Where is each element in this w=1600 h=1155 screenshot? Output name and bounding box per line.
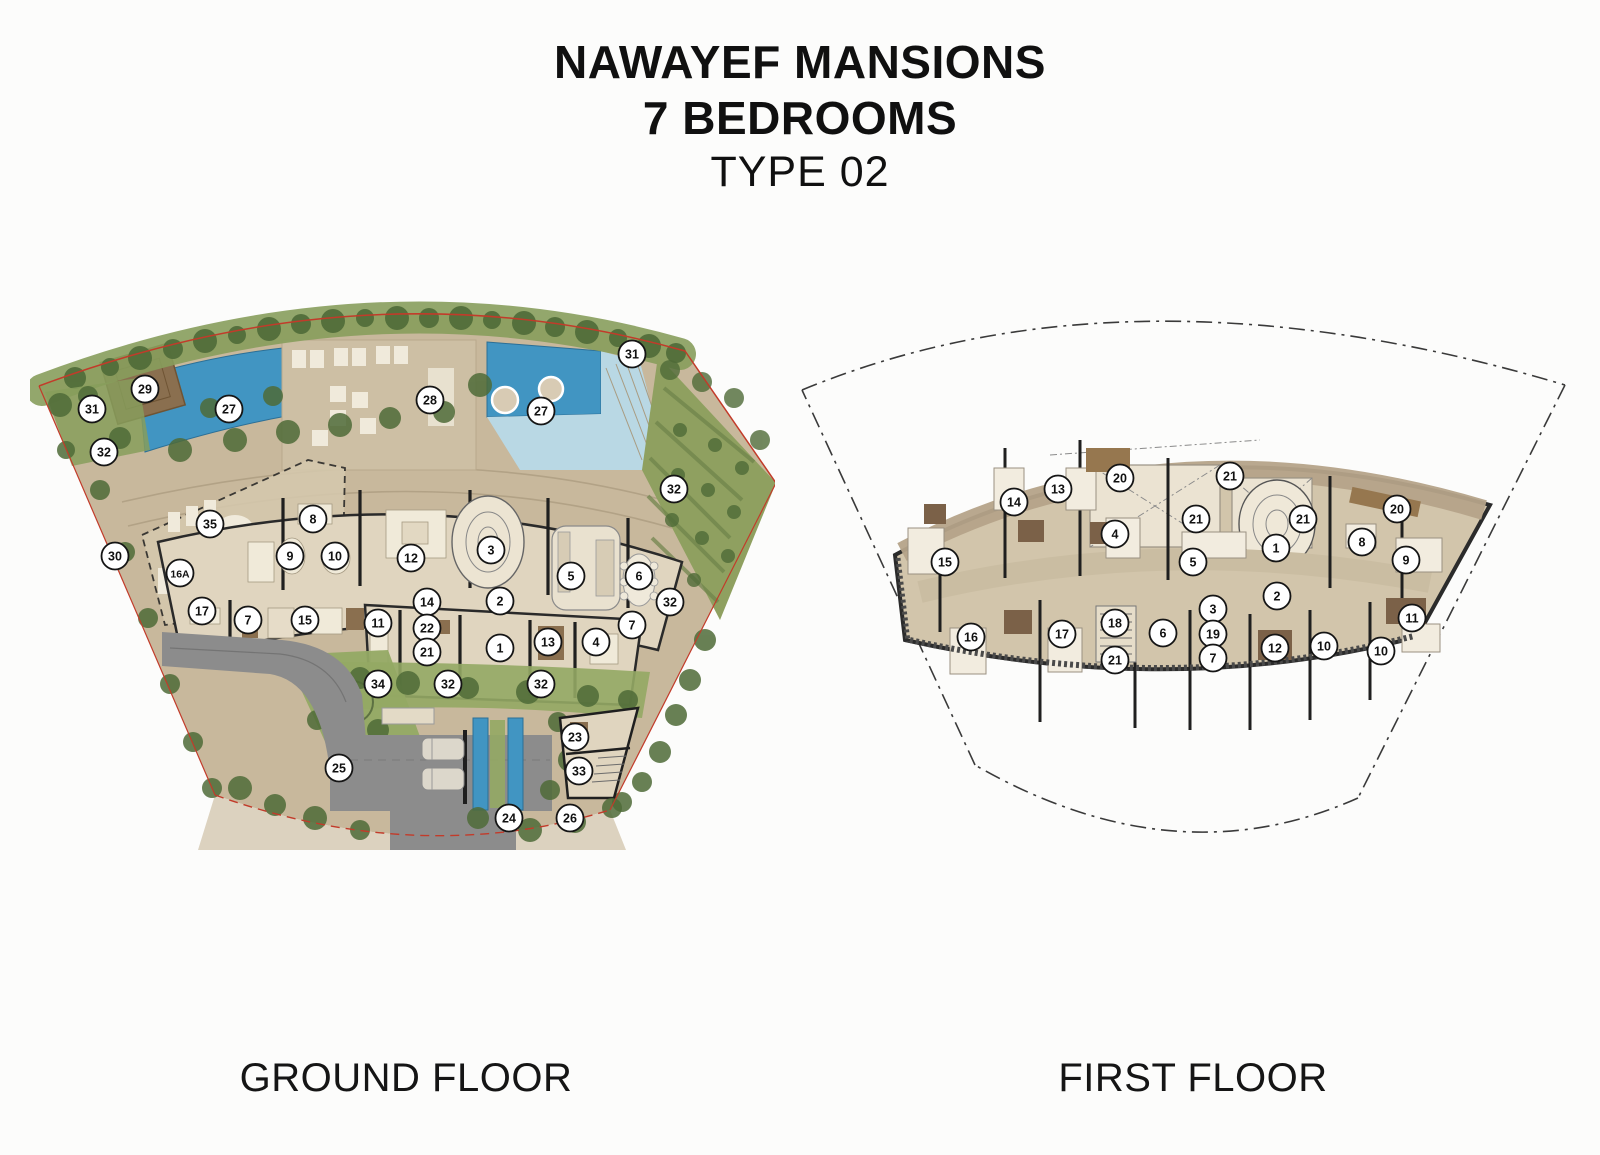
svg-text:12: 12 — [1268, 641, 1282, 655]
svg-text:5: 5 — [568, 569, 575, 583]
svg-text:21: 21 — [1189, 512, 1203, 526]
svg-text:28: 28 — [423, 393, 437, 407]
svg-text:32: 32 — [97, 445, 111, 459]
plan-marker-7: 7 — [619, 612, 646, 639]
svg-text:32: 32 — [534, 677, 548, 691]
plan-marker-32: 32 — [528, 671, 555, 698]
plan-marker-6: 6 — [626, 563, 653, 590]
svg-text:10: 10 — [1374, 644, 1388, 658]
plan-marker-10: 10 — [1311, 633, 1338, 660]
svg-text:18: 18 — [1108, 616, 1122, 630]
plan-marker-7: 7 — [235, 607, 262, 634]
svg-text:27: 27 — [222, 402, 236, 416]
svg-text:2: 2 — [497, 594, 504, 608]
plan-marker-31: 31 — [79, 396, 106, 423]
svg-text:32: 32 — [441, 677, 455, 691]
plan-marker-14: 14 — [414, 589, 441, 616]
ground-floor-plan: 29312732282731323583016A9101235632177151… — [30, 290, 775, 850]
service-rooms — [560, 708, 638, 798]
plan-marker-16A: 16A — [167, 560, 194, 587]
plan-marker-32: 32 — [91, 439, 118, 466]
plan-marker-34: 34 — [365, 671, 392, 698]
plan-marker-10: 10 — [322, 543, 349, 570]
svg-text:31: 31 — [85, 402, 99, 416]
plan-marker-7: 7 — [1200, 645, 1227, 672]
plan-marker-2: 2 — [1264, 583, 1291, 610]
plan-marker-22: 22 — [414, 615, 441, 642]
svg-text:9: 9 — [287, 549, 294, 563]
plan-marker-1: 1 — [487, 635, 514, 662]
plan-marker-16: 16 — [958, 624, 985, 651]
svg-text:23: 23 — [568, 730, 582, 744]
ground-floor-drawing: 29312732282731323583016A9101235632177151… — [30, 290, 775, 850]
building-first — [895, 440, 1490, 730]
plan-marker-20: 20 — [1384, 496, 1411, 523]
plan-marker-15: 15 — [292, 607, 319, 634]
svg-text:8: 8 — [310, 512, 317, 526]
bedrooms-subtitle: 7 BEDROOMS — [0, 90, 1600, 146]
plan-marker-5: 5 — [558, 563, 585, 590]
svg-text:11: 11 — [1405, 611, 1418, 625]
svg-text:26: 26 — [563, 811, 577, 825]
svg-text:13: 13 — [541, 635, 555, 649]
plan-marker-17: 17 — [189, 598, 216, 625]
plan-marker-19: 19 — [1200, 621, 1227, 648]
plan-marker-12: 12 — [1262, 635, 1289, 662]
svg-text:19: 19 — [1206, 627, 1220, 641]
plan-marker-15: 15 — [932, 549, 959, 576]
svg-text:31: 31 — [625, 347, 639, 361]
plan-marker-3: 3 — [478, 537, 505, 564]
plan-marker-29: 29 — [132, 376, 159, 403]
plan-marker-10: 10 — [1368, 638, 1395, 665]
svg-text:32: 32 — [667, 482, 681, 496]
svg-text:15: 15 — [298, 613, 312, 627]
plan-marker-31: 31 — [619, 341, 646, 368]
svg-text:14: 14 — [420, 595, 434, 609]
plan-marker-32: 32 — [661, 476, 688, 503]
svg-text:25: 25 — [332, 761, 346, 775]
svg-text:10: 10 — [328, 549, 342, 563]
svg-text:9: 9 — [1403, 553, 1410, 567]
plan-marker-27: 27 — [216, 396, 243, 423]
plan-marker-17: 17 — [1049, 621, 1076, 648]
svg-text:7: 7 — [245, 613, 252, 627]
svg-text:12: 12 — [404, 551, 418, 565]
title-block: NAWAYEF MANSIONS 7 BEDROOMS TYPE 02 — [0, 34, 1600, 199]
plan-marker-33: 33 — [566, 758, 593, 785]
plan-marker-1: 1 — [1263, 535, 1290, 562]
svg-text:32: 32 — [663, 595, 677, 609]
plan-marker-28: 28 — [417, 387, 444, 414]
svg-text:3: 3 — [1210, 602, 1217, 616]
svg-text:21: 21 — [1223, 469, 1237, 483]
svg-text:30: 30 — [108, 549, 122, 563]
plan-marker-21: 21 — [1217, 463, 1244, 490]
svg-text:33: 33 — [572, 764, 586, 778]
svg-text:5: 5 — [1190, 555, 1197, 569]
svg-text:14: 14 — [1007, 495, 1021, 509]
svg-text:2: 2 — [1274, 589, 1281, 603]
svg-text:21: 21 — [1296, 512, 1310, 526]
svg-text:6: 6 — [1160, 626, 1167, 640]
svg-text:13: 13 — [1051, 482, 1065, 496]
plan-marker-12: 12 — [398, 545, 425, 572]
plan-marker-9: 9 — [277, 543, 304, 570]
plan-marker-26: 26 — [557, 805, 584, 832]
svg-text:22: 22 — [420, 621, 434, 635]
plan-marker-30: 30 — [102, 543, 129, 570]
svg-text:1: 1 — [497, 641, 504, 655]
svg-text:16A: 16A — [170, 568, 190, 580]
svg-text:17: 17 — [1055, 627, 1069, 641]
first-floor-label: FIRST FLOOR — [933, 1056, 1453, 1101]
svg-text:35: 35 — [203, 517, 217, 531]
plan-marker-20: 20 — [1107, 465, 1134, 492]
plan-marker-3: 3 — [1200, 596, 1227, 623]
svg-text:34: 34 — [371, 677, 385, 691]
plan-marker-4: 4 — [583, 629, 610, 656]
plan-marker-11: 11 — [1399, 605, 1426, 632]
plan-marker-23: 23 — [562, 724, 589, 751]
plan-marker-32: 32 — [657, 589, 684, 616]
plan-marker-9: 9 — [1393, 547, 1420, 574]
svg-text:4: 4 — [593, 635, 600, 649]
svg-text:3: 3 — [488, 543, 495, 557]
ground-floor-label: GROUND FLOOR — [146, 1056, 666, 1101]
plan-marker-35: 35 — [197, 511, 224, 538]
plan-marker-21: 21 — [1290, 506, 1317, 533]
plan-marker-25: 25 — [326, 755, 353, 782]
plan-marker-2: 2 — [487, 588, 514, 615]
type-subtitle: TYPE 02 — [0, 146, 1600, 198]
svg-text:4: 4 — [1112, 527, 1119, 541]
plan-marker-8: 8 — [1349, 529, 1376, 556]
svg-text:16: 16 — [964, 630, 978, 644]
plan-marker-21: 21 — [1183, 506, 1210, 533]
plan-marker-6: 6 — [1150, 620, 1177, 647]
plan-marker-4: 4 — [1102, 521, 1129, 548]
svg-text:7: 7 — [1210, 651, 1217, 665]
svg-text:21: 21 — [1108, 653, 1122, 667]
svg-text:17: 17 — [195, 604, 209, 618]
plan-marker-18: 18 — [1102, 610, 1129, 637]
svg-text:21: 21 — [420, 645, 434, 659]
svg-text:7: 7 — [629, 618, 636, 632]
plan-marker-11: 11 — [365, 610, 392, 637]
plan-marker-32: 32 — [435, 671, 462, 698]
first-floor-drawing: 1413202142121201551892318619161771210101… — [790, 280, 1570, 870]
svg-text:29: 29 — [138, 382, 152, 396]
svg-text:15: 15 — [938, 555, 952, 569]
plan-marker-21: 21 — [1102, 647, 1129, 674]
plan-marker-24: 24 — [496, 805, 523, 832]
svg-text:20: 20 — [1113, 471, 1127, 485]
plan-marker-14: 14 — [1001, 489, 1028, 516]
svg-text:6: 6 — [636, 569, 643, 583]
first-floor-plan: 1413202142121201551892318619161771210101… — [790, 280, 1570, 870]
svg-text:1: 1 — [1273, 541, 1280, 555]
plan-marker-27: 27 — [528, 398, 555, 425]
plan-marker-5: 5 — [1180, 549, 1207, 576]
svg-text:8: 8 — [1359, 535, 1366, 549]
plan-marker-21: 21 — [414, 639, 441, 666]
svg-text:24: 24 — [502, 811, 516, 825]
plan-marker-13: 13 — [535, 629, 562, 656]
plan-marker-13: 13 — [1045, 476, 1072, 503]
project-title: NAWAYEF MANSIONS — [0, 34, 1600, 90]
svg-text:10: 10 — [1317, 639, 1331, 653]
svg-text:27: 27 — [534, 404, 548, 418]
svg-text:11: 11 — [371, 616, 384, 630]
plan-marker-8: 8 — [300, 506, 327, 533]
svg-text:20: 20 — [1390, 502, 1404, 516]
